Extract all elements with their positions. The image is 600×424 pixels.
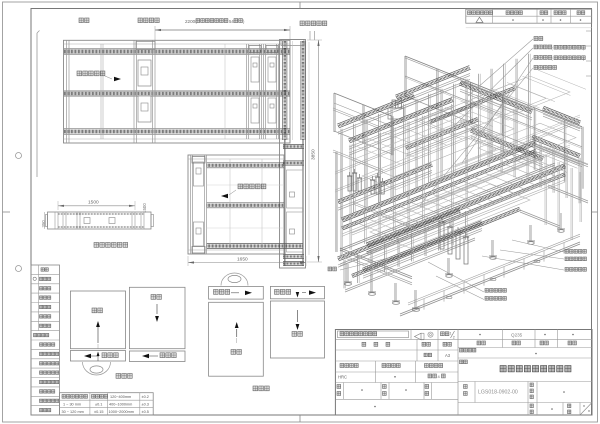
svg-text:350: 350 bbox=[41, 220, 46, 228]
svg-text:400~1000mm: 400~1000mm bbox=[109, 403, 132, 407]
svg-text:3850: 3850 bbox=[311, 149, 317, 160]
svg-text:Q235: Q235 bbox=[511, 332, 523, 337]
svg-text:120~400mm: 120~400mm bbox=[110, 395, 131, 399]
svg-text:1: 1 bbox=[450, 332, 452, 336]
svg-text:±0.1: ±0.1 bbox=[95, 403, 102, 407]
svg-text:±0.5: ±0.5 bbox=[142, 410, 149, 414]
svg-text:2200(: 2200( bbox=[185, 19, 197, 24]
svg-text:A3: A3 bbox=[445, 353, 451, 358]
svg-text:LGS018-0902-00: LGS018-0902-00 bbox=[478, 389, 518, 395]
svg-text:HRC: HRC bbox=[338, 374, 347, 379]
svg-text:1 ~ 30 mm: 1 ~ 30 mm bbox=[63, 403, 81, 407]
svg-text:2: 2 bbox=[453, 336, 455, 340]
svg-text:±0.15: ±0.15 bbox=[94, 410, 103, 414]
svg-text:1000~2000mm: 1000~2000mm bbox=[109, 410, 134, 414]
svg-text:±0.2: ±0.2 bbox=[142, 395, 149, 399]
svg-text:1650: 1650 bbox=[237, 257, 248, 263]
svg-text:1500: 1500 bbox=[142, 203, 147, 213]
svg-text:): ) bbox=[583, 57, 584, 61]
svg-text:1500: 1500 bbox=[88, 200, 99, 206]
svg-text:): ) bbox=[583, 47, 584, 51]
svg-text:30 ~ 120 mm: 30 ~ 120 mm bbox=[62, 410, 84, 414]
svg-text:54: 54 bbox=[229, 19, 234, 24]
svg-text:±0.3: ±0.3 bbox=[142, 403, 149, 407]
